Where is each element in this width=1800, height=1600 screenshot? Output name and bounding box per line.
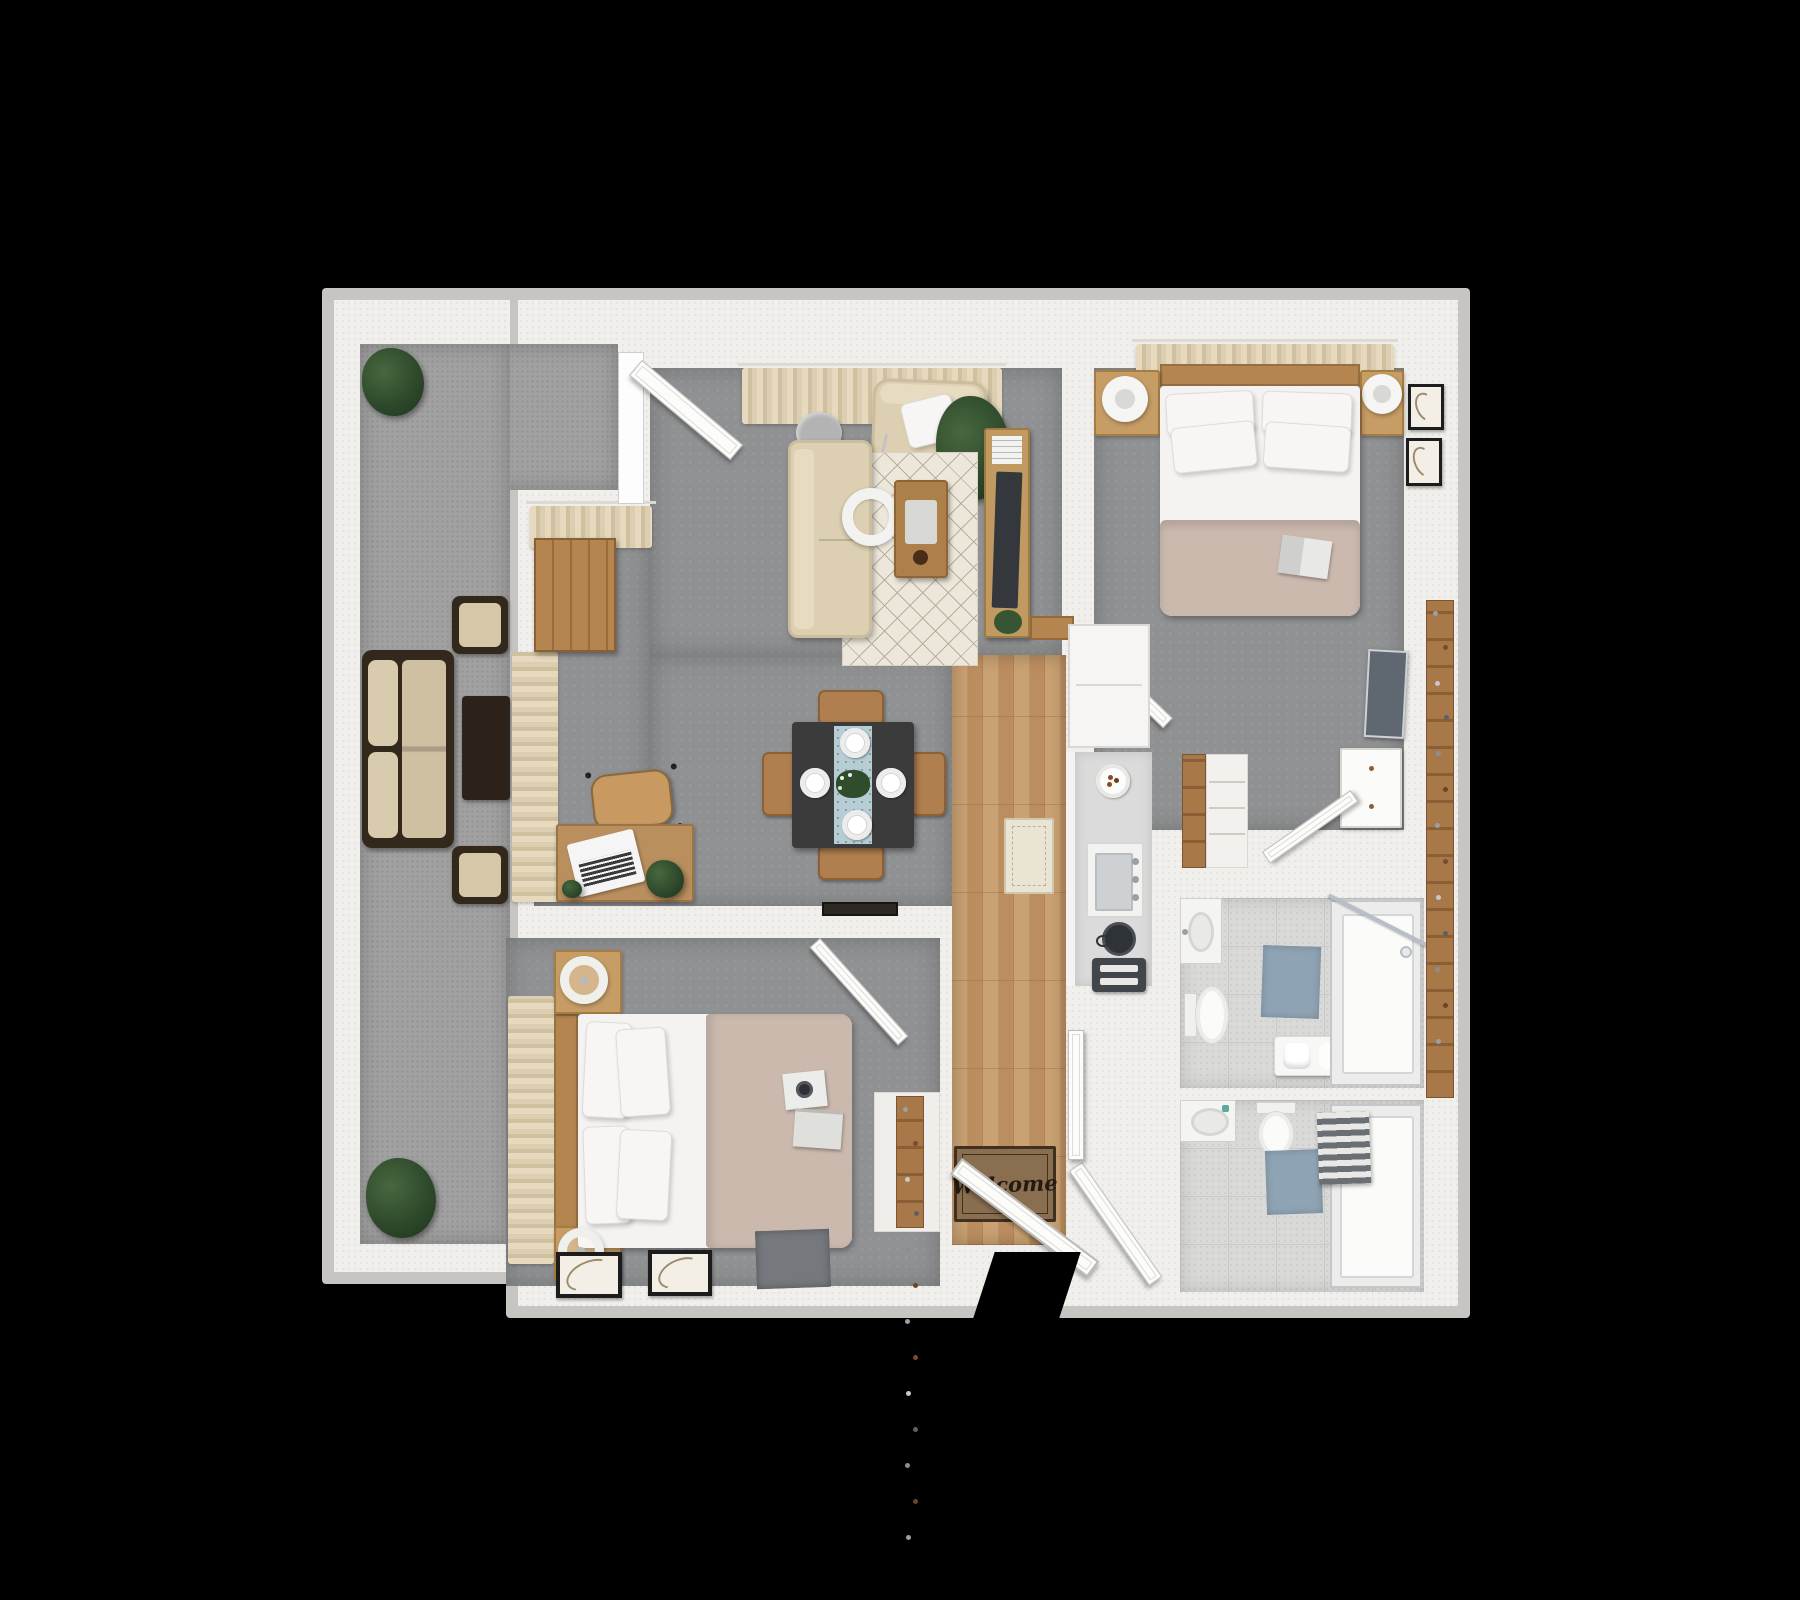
gray-floor-mat [755, 1229, 831, 1290]
bed [578, 1014, 852, 1248]
headboard [554, 1014, 578, 1248]
floor-plan: Welcome [0, 0, 1800, 1600]
bedside-lamp [560, 956, 608, 1004]
pillow [615, 1026, 671, 1117]
framed-print-on-floor [556, 1252, 622, 1298]
book [793, 1108, 844, 1149]
bedroom-2 [0, 0, 1800, 1600]
pillow [616, 1129, 673, 1222]
window-curtain [508, 996, 554, 1264]
framed-print-on-floor [648, 1250, 712, 1296]
camera [782, 1070, 828, 1110]
